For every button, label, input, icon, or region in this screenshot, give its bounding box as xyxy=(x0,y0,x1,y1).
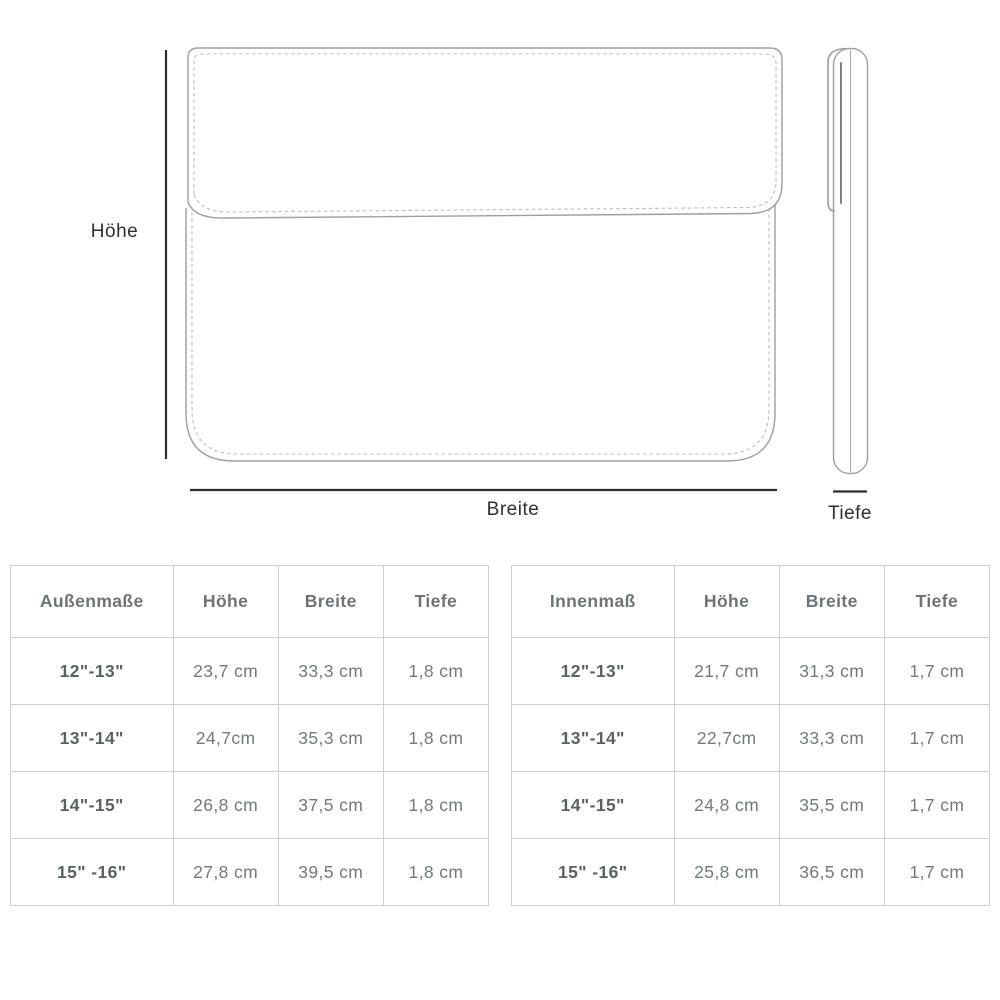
table-row: 15" -16" 27,8 cm 39,5 cm 1,8 cm xyxy=(11,839,489,906)
height-cell: 27,8 cm xyxy=(173,839,278,906)
size-cell: 15" -16" xyxy=(11,839,174,906)
depth-cell: 1,8 cm xyxy=(383,772,488,839)
width-column-header: Breite xyxy=(278,566,383,638)
header-row: Außenmaße Höhe Breite Tiefe xyxy=(11,566,489,638)
depth-column-header: Tiefe xyxy=(884,566,989,638)
depth-cell: 1,8 cm xyxy=(383,638,488,705)
depth-cell: 1,7 cm xyxy=(884,839,989,906)
table-row: 13"-14" 22,7cm 33,3 cm 1,7 cm xyxy=(512,705,990,772)
sleeve-body-stitching xyxy=(192,204,769,454)
width-cell: 35,3 cm xyxy=(278,705,383,772)
dimension-tables: Außenmaße Höhe Breite Tiefe 12"-13" 23,7… xyxy=(10,565,990,906)
depth-cell: 1,7 cm xyxy=(884,638,989,705)
height-column-header: Höhe xyxy=(674,566,779,638)
size-cell: 12"-13" xyxy=(11,638,174,705)
width-cell: 33,3 cm xyxy=(278,638,383,705)
outer-dimensions-table: Außenmaße Höhe Breite Tiefe 12"-13" 23,7… xyxy=(10,565,489,906)
height-cell: 24,7cm xyxy=(173,705,278,772)
depth-cell: 1,8 cm xyxy=(383,705,488,772)
depth-cell: 1,8 cm xyxy=(383,839,488,906)
width-cell: 37,5 cm xyxy=(278,772,383,839)
sleeve-side-view xyxy=(828,49,868,474)
width-cell: 36,5 cm xyxy=(779,839,884,906)
table-row: 13"-14" 24,7cm 35,3 cm 1,8 cm xyxy=(11,705,489,772)
size-cell: 12"-13" xyxy=(512,638,675,705)
dimension-diagram: Höhe Breite Tiefe xyxy=(0,0,1000,560)
size-cell: 14"-15" xyxy=(512,772,675,839)
width-cell: 35,5 cm xyxy=(779,772,884,839)
inner-title-header: Innenmaß xyxy=(512,566,675,638)
sleeve-body-outline xyxy=(186,200,775,461)
depth-label: Tiefe xyxy=(800,503,900,525)
table-row: 14"-15" 26,8 cm 37,5 cm 1,8 cm xyxy=(11,772,489,839)
depth-cell: 1,7 cm xyxy=(884,705,989,772)
height-column-header: Höhe xyxy=(173,566,278,638)
height-cell: 24,8 cm xyxy=(674,772,779,839)
height-cell: 26,8 cm xyxy=(173,772,278,839)
height-cell: 21,7 cm xyxy=(674,638,779,705)
height-cell: 25,8 cm xyxy=(674,839,779,906)
header-row: Innenmaß Höhe Breite Tiefe xyxy=(512,566,990,638)
sleeve-flap-outline xyxy=(188,48,782,218)
height-cell: 23,7 cm xyxy=(173,638,278,705)
inner-dimensions-table: Innenmaß Höhe Breite Tiefe 12"-13" 21,7 … xyxy=(511,565,990,906)
product-dimension-sheet: Höhe Breite Tiefe Außenmaße Höhe Breite … xyxy=(0,0,1000,1000)
sleeve-line-drawing xyxy=(0,0,1000,560)
outer-title-header: Außenmaße xyxy=(11,566,174,638)
size-cell: 13"-14" xyxy=(512,705,675,772)
width-cell: 33,3 cm xyxy=(779,705,884,772)
table-row: 14"-15" 24,8 cm 35,5 cm 1,7 cm xyxy=(512,772,990,839)
table-row: 12"-13" 21,7 cm 31,3 cm 1,7 cm xyxy=(512,638,990,705)
table-row: 15" -16" 25,8 cm 36,5 cm 1,7 cm xyxy=(512,839,990,906)
height-label: Höhe xyxy=(62,221,167,243)
width-cell: 39,5 cm xyxy=(278,839,383,906)
width-cell: 31,3 cm xyxy=(779,638,884,705)
height-cell: 22,7cm xyxy=(674,705,779,772)
width-label: Breite xyxy=(463,499,563,521)
size-cell: 14"-15" xyxy=(11,772,174,839)
size-cell: 15" -16" xyxy=(512,839,675,906)
depth-column-header: Tiefe xyxy=(383,566,488,638)
table-row: 12"-13" 23,7 cm 33,3 cm 1,8 cm xyxy=(11,638,489,705)
depth-cell: 1,7 cm xyxy=(884,772,989,839)
size-cell: 13"-14" xyxy=(11,705,174,772)
width-column-header: Breite xyxy=(779,566,884,638)
